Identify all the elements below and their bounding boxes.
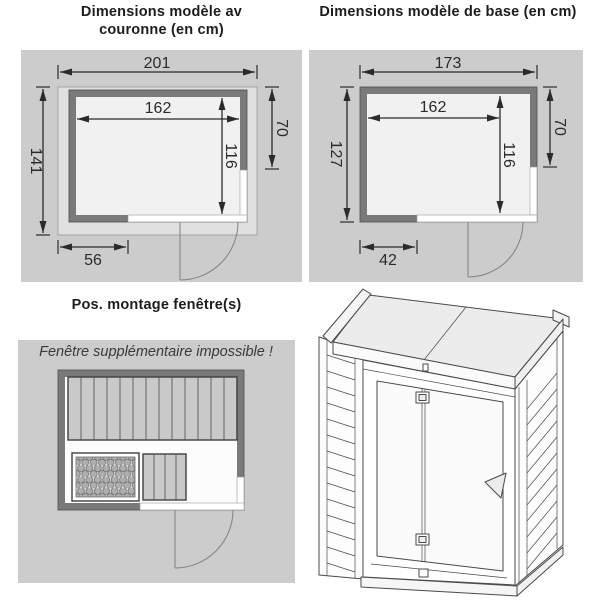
dim-outer-width-label: 201 — [144, 55, 171, 72]
glass-front-sill — [417, 215, 537, 222]
window-positions-panel: Fenêtre supplémentaire impossible ! — [18, 340, 295, 583]
dim-inner-width-label: 162 — [145, 100, 172, 117]
plan-av-couronne-panel: 201 141 70 162 116 — [21, 50, 302, 282]
dim-outer-depth: 127 — [327, 87, 354, 222]
dim-outer-width: 201 — [58, 55, 257, 79]
manual-page: Dimensions modèle av couronne (en cm) Di… — [0, 0, 600, 600]
dim-front-wall-segment: 42 — [360, 240, 417, 269]
door-hinge-bottom — [416, 534, 429, 545]
window-positions-plan: Fenêtre supplémentaire impossible ! — [18, 340, 295, 583]
mullion-top-pin — [423, 364, 428, 371]
title-line1: Dimensions modèle av — [21, 4, 302, 22]
plan-base-panel: 173 127 70 162 116 — [309, 50, 583, 282]
dim-outer-width: 173 — [360, 55, 537, 79]
glass-panels — [377, 381, 503, 571]
glass-front-sill — [128, 215, 247, 222]
dim-outer-depth-label: 141 — [27, 148, 44, 175]
note-additional-window: Fenêtre supplémentaire impossible ! — [39, 344, 273, 360]
left-wall — [319, 337, 363, 579]
dim-side-window-offset-label: 70 — [551, 118, 568, 136]
heater — [72, 453, 139, 501]
title-model-base: Dimensions modèle de base (en cm) — [296, 4, 600, 22]
side-window-opening — [530, 167, 537, 215]
door-floor-guide — [419, 569, 428, 577]
door-swing — [468, 222, 523, 277]
dim-outer-depth-label: 127 — [327, 141, 344, 168]
title-model-av-couronne: Dimensions modèle av couronne (en cm) — [21, 4, 302, 39]
door-hinge-top — [416, 392, 429, 403]
dim-side-window-offset-label: 70 — [273, 119, 290, 137]
sauna-isometric-view — [305, 285, 600, 600]
dim-front-wall-segment: 56 — [58, 240, 128, 269]
bench — [68, 377, 237, 440]
dim-outer-width-label: 173 — [435, 55, 462, 72]
plan-av-couronne: 201 141 70 162 116 — [21, 50, 302, 282]
dim-outer-depth: 141 — [27, 87, 50, 235]
dim-side-window-offset: 70 — [543, 87, 568, 167]
side-window-opening — [240, 170, 247, 219]
step-bench — [143, 454, 186, 500]
dim-inner-width-label: 162 — [420, 99, 447, 116]
dim-side-window-offset: 70 — [265, 87, 290, 169]
glass-front — [363, 360, 515, 585]
sauna-isometric-panel — [305, 285, 600, 600]
dim-inner-depth-label: 116 — [500, 142, 517, 168]
dim-inner-depth-label: 116 — [222, 143, 239, 169]
door-swing — [175, 510, 233, 568]
glass-front-sill — [140, 503, 244, 510]
plan-base: 173 127 70 162 116 — [309, 50, 583, 282]
dim-front-wall-segment-label: 56 — [84, 252, 102, 269]
title-line2: couronne (en cm) — [21, 22, 302, 40]
title-window-positions: Pos. montage fenêtre(s) — [18, 297, 295, 315]
dim-front-wall-segment-label: 42 — [379, 252, 397, 269]
